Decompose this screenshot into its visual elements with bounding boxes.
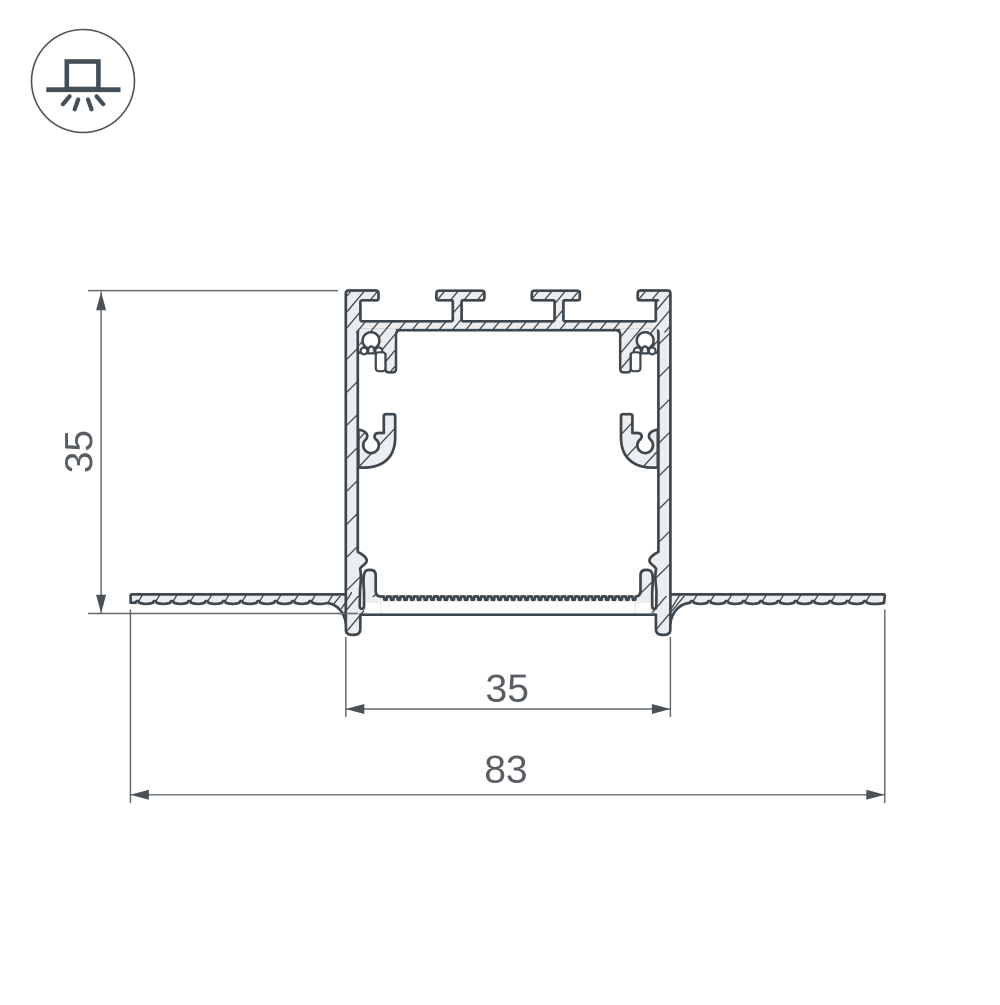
svg-text:83: 83 [484, 749, 527, 792]
svg-text:35: 35 [58, 430, 101, 473]
svg-text:35: 35 [486, 667, 529, 710]
